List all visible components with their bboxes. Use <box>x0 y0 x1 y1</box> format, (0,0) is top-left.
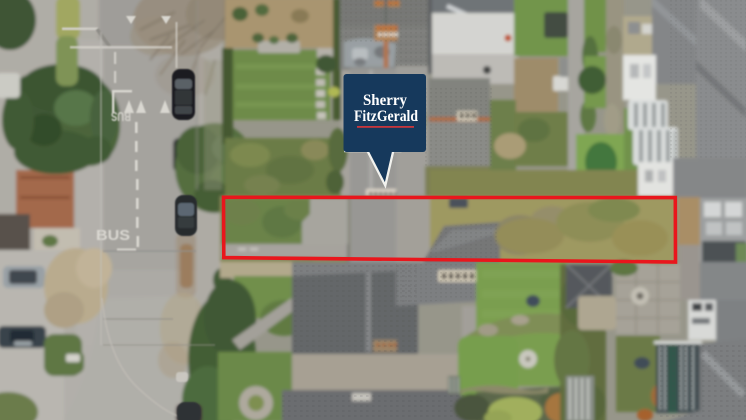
svg-text:FitzGerald: FitzGerald <box>354 108 418 125</box>
svg-text:Sherry: Sherry <box>363 92 407 109</box>
